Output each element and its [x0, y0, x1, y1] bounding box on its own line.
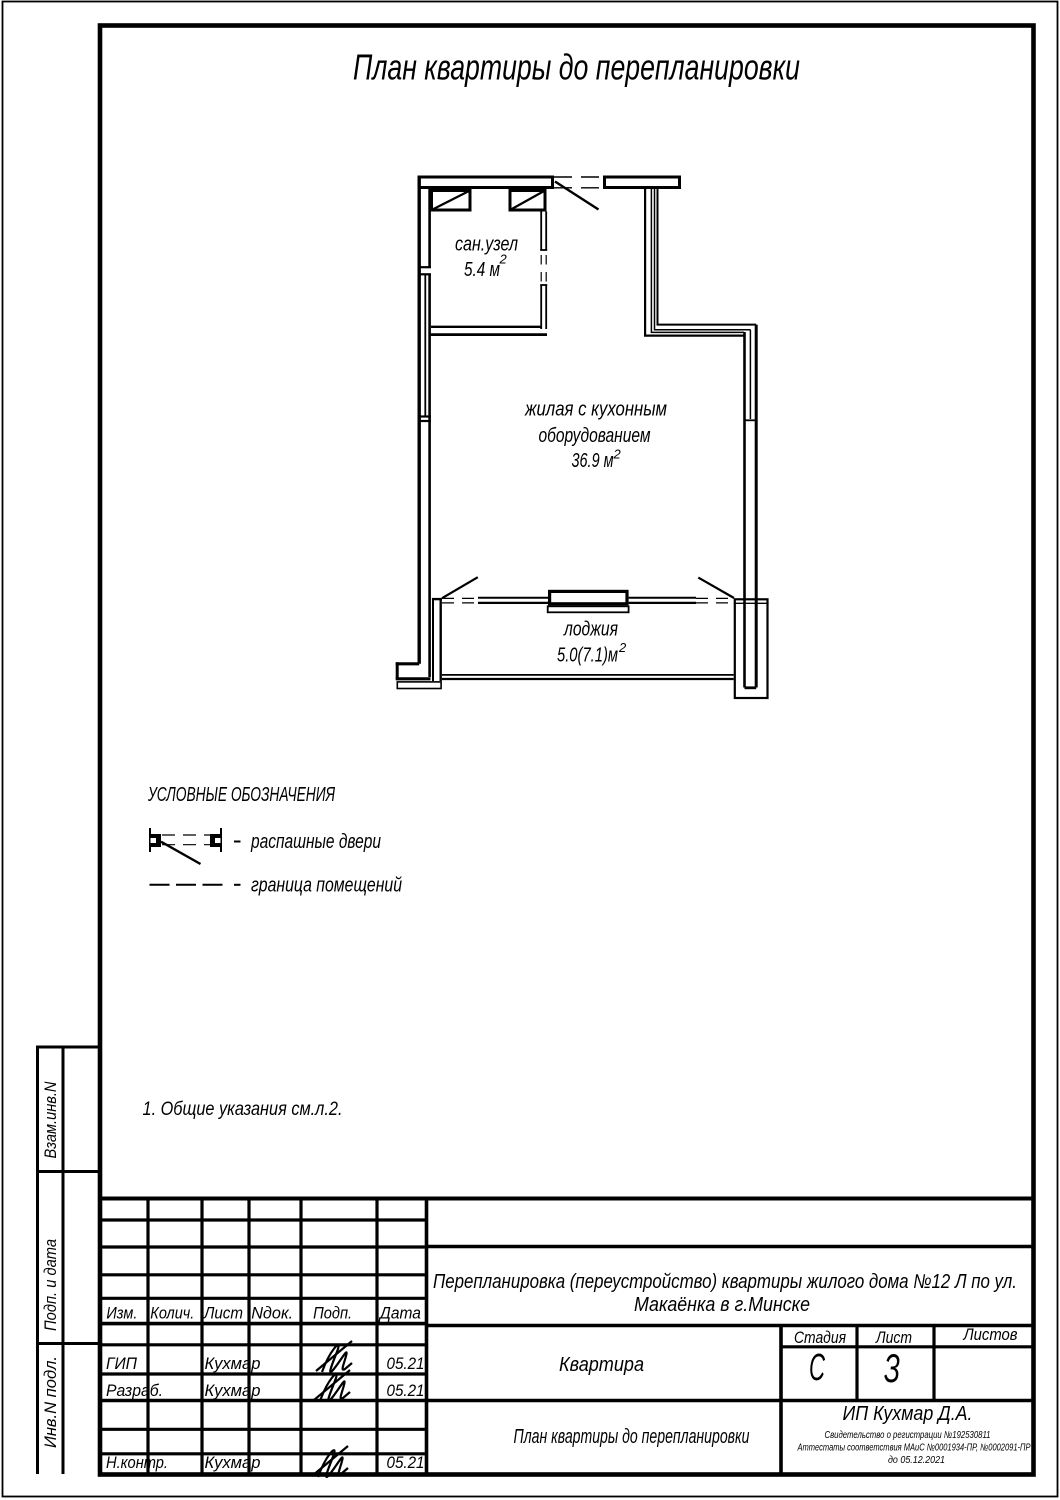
svg-text:УСЛОВНЫЕ ОБОЗНАЧЕНИЯ: УСЛОВНЫЕ ОБОЗНАЧЕНИЯ: [147, 784, 335, 806]
svg-text:распашные двери: распашные двери: [250, 831, 381, 853]
svg-text:05.21: 05.21: [387, 1354, 425, 1373]
svg-text:ГИП: ГИП: [106, 1354, 138, 1373]
svg-text:5.4 м: 5.4 м: [464, 259, 500, 281]
svg-text:Аттестаты соответствия МАиС №0: Аттестаты соответствия МАиС №0001934-ПР,…: [797, 1443, 1031, 1454]
svg-text:Квартира: Квартира: [559, 1354, 644, 1376]
svg-text:1. Общие указания см.л.2.: 1. Общие указания см.л.2.: [143, 1099, 343, 1120]
svg-text:до 05.12.2021: до 05.12.2021: [888, 1455, 945, 1466]
svg-text:сан.узел: сан.узел: [455, 234, 518, 256]
svg-text:ИП Кухмар Д.А.: ИП Кухмар Д.А.: [843, 1403, 973, 1425]
svg-text:граница помещений: граница помещений: [251, 875, 402, 897]
svg-text:Кухмар: Кухмар: [205, 1453, 261, 1472]
svg-text:План квартиры до перепланировк: План квартиры до перепланировки: [514, 1426, 750, 1448]
svg-text:Н.контр.: Н.контр.: [106, 1453, 168, 1472]
svg-text:2: 2: [499, 252, 508, 267]
svg-text:С: С: [809, 1347, 825, 1389]
svg-text:Взам.инв.N: Взам.инв.N: [41, 1081, 60, 1159]
svg-text:05.21: 05.21: [387, 1381, 425, 1400]
svg-text:оборудованием: оборудованием: [539, 425, 651, 447]
svg-text:Лист: Лист: [875, 1328, 912, 1347]
svg-text:5.0(7.1)м: 5.0(7.1)м: [557, 645, 618, 667]
svg-text:жилая с кухонным: жилая с кухонным: [524, 399, 667, 421]
svg-text:Изм.: Изм.: [106, 1304, 137, 1323]
svg-text:лоджия: лоджия: [563, 619, 618, 641]
svg-text:2: 2: [613, 447, 622, 462]
svg-text:Колич.: Колич.: [150, 1304, 194, 1323]
svg-text:Разраб.: Разраб.: [106, 1381, 163, 1400]
svg-text:Стадия: Стадия: [794, 1328, 846, 1347]
svg-text:Свидетельство о регистрации №1: Свидетельство о регистрации №192530811: [825, 1430, 991, 1441]
svg-text:36.9 м: 36.9 м: [572, 450, 614, 472]
svg-text:План квартиры до перепланировк: План квартиры до перепланировки: [353, 47, 800, 88]
svg-text:Кухмар: Кухмар: [205, 1354, 261, 1373]
svg-text:Nдок.: Nдок.: [251, 1304, 293, 1323]
svg-text:Подп.: Подп.: [313, 1304, 352, 1323]
svg-text:Листов: Листов: [963, 1325, 1018, 1344]
svg-text:Кухмар: Кухмар: [205, 1381, 261, 1400]
svg-text:Подп. и дата: Подп. и дата: [41, 1239, 60, 1331]
svg-text:Инв.N подл.: Инв.N подл.: [41, 1356, 60, 1448]
svg-text:2: 2: [618, 640, 627, 655]
svg-text:З: З: [884, 1347, 900, 1391]
svg-text:Макаёнка в г.Минске: Макаёнка в г.Минске: [634, 1294, 810, 1316]
svg-text:Дата: Дата: [378, 1304, 421, 1323]
svg-text:05.21: 05.21: [387, 1453, 425, 1472]
svg-text:Лист: Лист: [203, 1304, 243, 1323]
svg-text:Перепланировка (переустройство: Перепланировка (переустройство) квартиры…: [433, 1271, 1017, 1293]
